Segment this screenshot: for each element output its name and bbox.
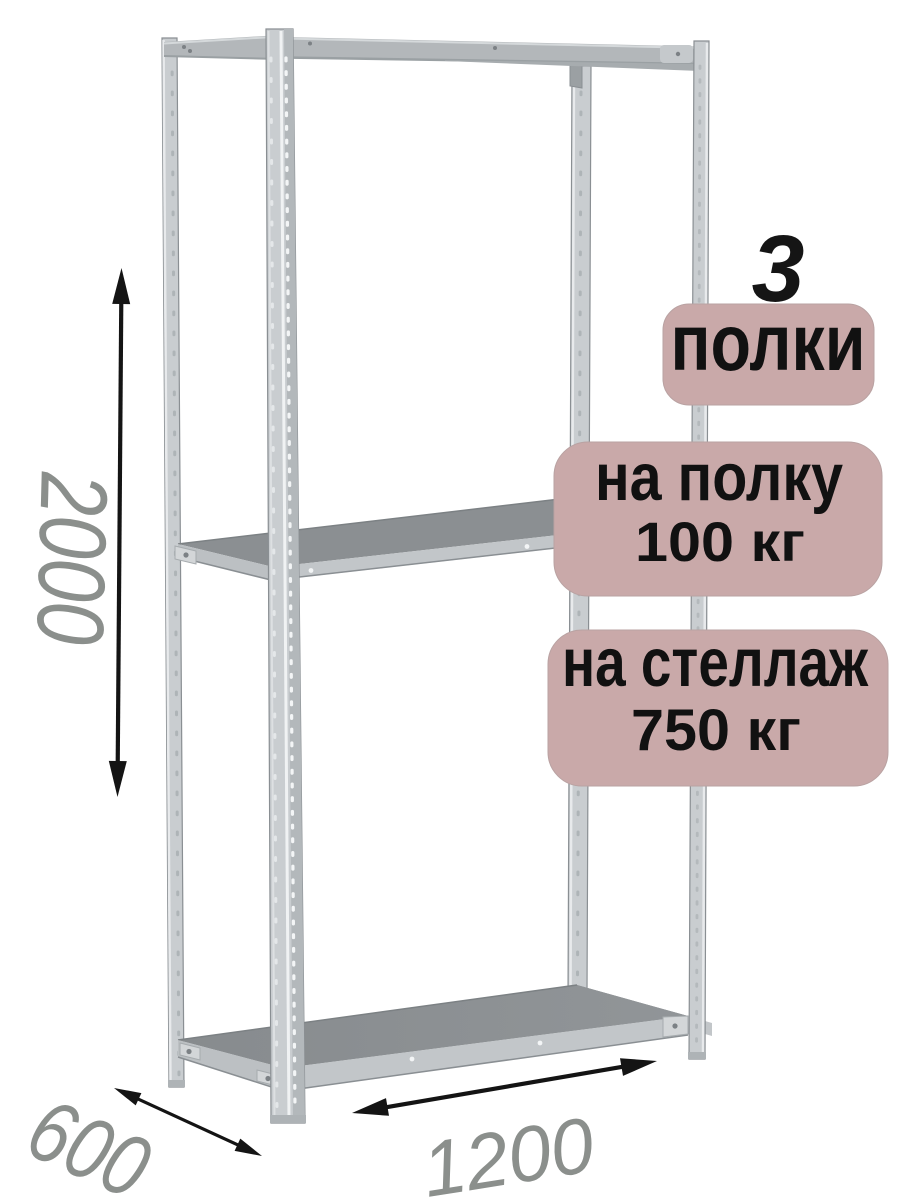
svg-text:750 кг: 750 кг	[631, 698, 801, 763]
svg-text:на полку: на полку	[595, 440, 843, 515]
svg-text:100 кг: 100 кг	[635, 510, 805, 573]
svg-text:на стеллаж: на стеллаж	[562, 624, 869, 701]
svg-text:2000: 2000	[16, 470, 126, 646]
svg-text:полки: полки	[671, 298, 866, 387]
